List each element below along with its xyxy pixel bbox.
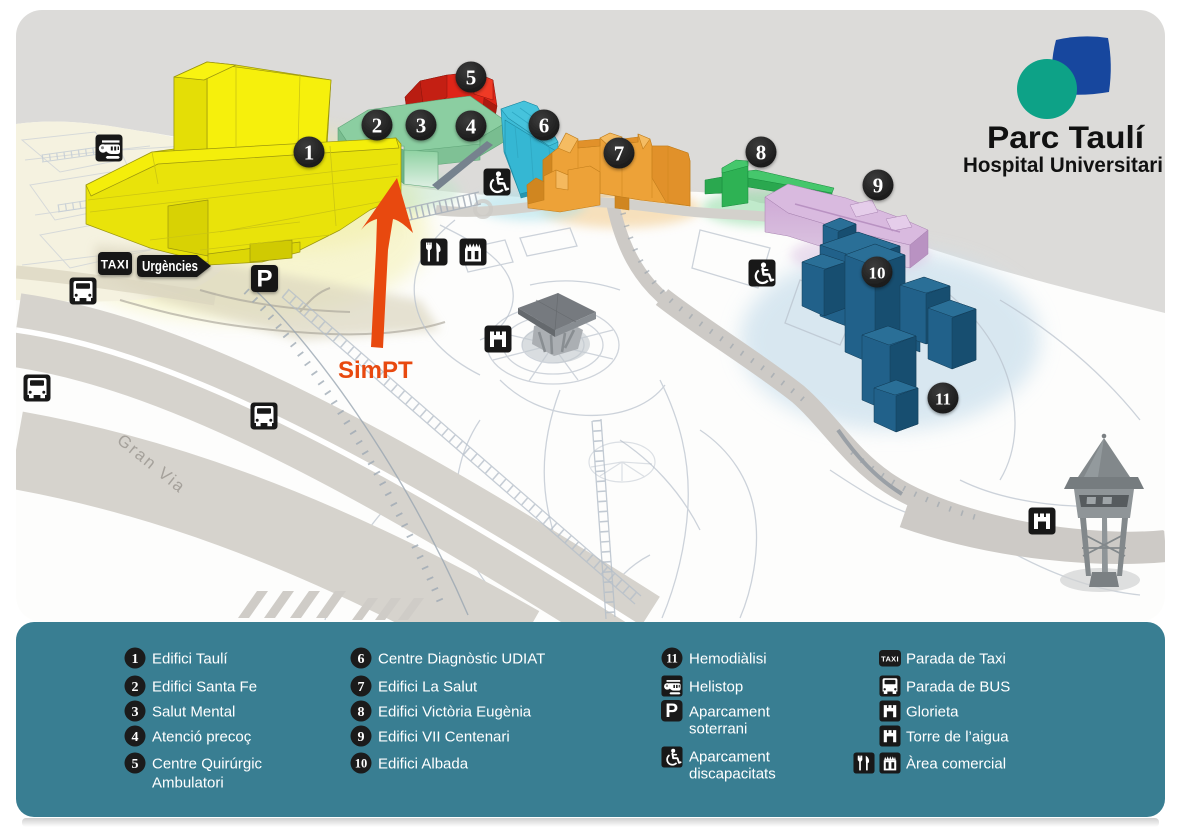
svg-text:Helistop: Helistop — [689, 679, 743, 696]
svg-text:1: 1 — [132, 652, 139, 667]
svg-text:Edifici VII Centenari: Edifici VII Centenari — [378, 729, 510, 746]
svg-text:Edifici Santa Fe: Edifici Santa Fe — [152, 679, 257, 696]
svg-text:Centre Quirúrgic: Centre Quirúrgic — [152, 756, 263, 773]
svg-text:6: 6 — [358, 652, 365, 667]
svg-text:1: 1 — [304, 141, 315, 165]
svg-text:Edifici Taulí: Edifici Taulí — [152, 651, 228, 668]
svg-text:11: 11 — [666, 652, 678, 666]
svg-text:5: 5 — [466, 66, 477, 90]
svg-text:6: 6 — [539, 114, 550, 138]
svg-text:4: 4 — [466, 115, 477, 139]
svg-text:4: 4 — [132, 730, 139, 745]
svg-text:Edifici Victòria Eugènia: Edifici Victòria Eugènia — [378, 704, 532, 721]
svg-text:SimPT: SimPT — [338, 357, 413, 384]
svg-text:2: 2 — [132, 680, 139, 695]
svg-text:9: 9 — [873, 174, 884, 198]
svg-text:Edifici Albada: Edifici Albada — [378, 756, 469, 773]
svg-text:TAXI: TAXI — [881, 655, 899, 664]
svg-text:2: 2 — [372, 114, 383, 138]
svg-text:Urgències: Urgències — [142, 259, 198, 275]
svg-text:Aparcament: Aparcament — [689, 704, 771, 721]
svg-text:TAXI: TAXI — [101, 258, 129, 272]
svg-text:7: 7 — [358, 680, 365, 695]
svg-text:3: 3 — [132, 705, 139, 720]
svg-text:11: 11 — [935, 390, 951, 409]
svg-text:soterrani: soterrani — [689, 721, 747, 738]
svg-text:8: 8 — [358, 705, 365, 720]
svg-text:Centre Diagnòstic UDIAT: Centre Diagnòstic UDIAT — [378, 651, 545, 668]
svg-text:5: 5 — [132, 757, 139, 772]
svg-text:Salut Mental: Salut Mental — [152, 704, 235, 721]
svg-text:Hospital Universitari: Hospital Universitari — [963, 154, 1163, 177]
svg-text:Parada de Taxi: Parada de Taxi — [906, 651, 1006, 668]
svg-text:Hemodiàlisi: Hemodiàlisi — [689, 651, 767, 668]
svg-text:Parc Taulí: Parc Taulí — [987, 119, 1145, 155]
svg-text:Àrea comercial: Àrea comercial — [906, 756, 1006, 773]
svg-text:discapacitats: discapacitats — [689, 766, 776, 783]
svg-text:Atenció precoç: Atenció precoç — [152, 729, 252, 746]
svg-text:Torre de l’aigua: Torre de l’aigua — [906, 729, 1009, 746]
svg-text:7: 7 — [614, 142, 625, 166]
svg-text:3: 3 — [416, 114, 427, 138]
svg-text:P: P — [665, 701, 678, 722]
svg-text:10: 10 — [355, 757, 368, 771]
svg-text:8: 8 — [756, 141, 767, 165]
svg-text:Edifici La Salut: Edifici La Salut — [378, 679, 478, 696]
svg-text:9: 9 — [358, 730, 365, 745]
svg-text:P: P — [256, 266, 272, 293]
svg-text:Aparcament: Aparcament — [689, 749, 771, 766]
svg-text:Glorieta: Glorieta — [906, 704, 959, 721]
svg-text:Parada de BUS: Parada de BUS — [906, 679, 1010, 696]
svg-text:Ambulatori: Ambulatori — [152, 775, 224, 792]
svg-text:10: 10 — [869, 264, 886, 283]
